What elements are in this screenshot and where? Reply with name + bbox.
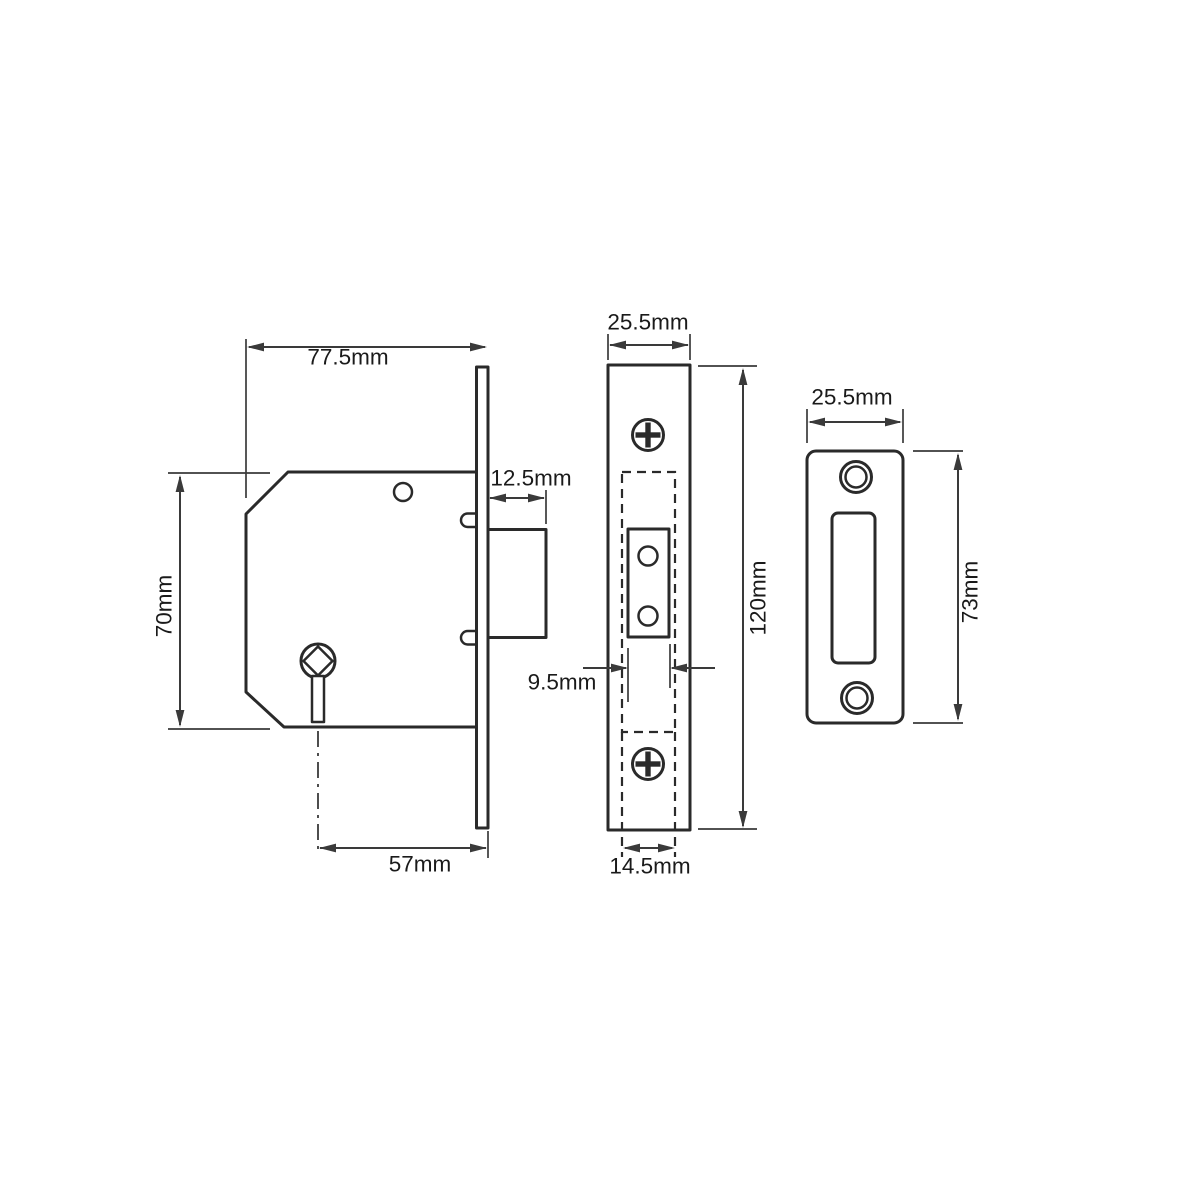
dim-label-case-width: 14.5mm <box>609 854 690 879</box>
arrowhead-left <box>489 494 506 503</box>
dim-label-faceplate-height: 120mm <box>746 560 771 635</box>
strike-plate-view <box>807 451 903 723</box>
strike-screw-hole-top <box>841 462 872 493</box>
deadbolt-side <box>483 530 546 638</box>
arrowhead-left <box>609 341 626 350</box>
bolt-pin-bottom <box>639 607 658 626</box>
dim-backset: 57mm <box>319 831 488 877</box>
arrowhead-right <box>470 343 487 352</box>
arrowhead-up <box>176 475 185 492</box>
drawing-canvas: 77.5mm 70mm 12.5mm 57mm <box>0 0 1200 1200</box>
dim-label-strike-width: 25.5mm <box>811 385 892 410</box>
hole-inner <box>846 467 867 488</box>
arrowhead-right <box>658 844 675 853</box>
screw-cross-v <box>645 752 650 777</box>
faceplate-front-view <box>608 365 690 857</box>
arrowhead-down <box>739 811 748 828</box>
dim-label-faceplate-width: 25.5mm <box>607 310 688 335</box>
dim-label-body-width: 77.5mm <box>307 345 388 370</box>
dim-label-body-height: 70mm <box>152 575 177 638</box>
arrowhead-up <box>739 368 748 385</box>
case-hole <box>394 483 412 501</box>
keyhole-slot <box>312 676 324 722</box>
hole-inner <box>847 688 868 709</box>
arrowhead-down <box>954 704 963 721</box>
arrowhead-left <box>623 844 640 853</box>
phillips-screw-top-icon <box>633 420 664 451</box>
arrowhead-left <box>247 343 264 352</box>
dim-strike-width: 25.5mm <box>807 385 903 444</box>
bolt-pin-top <box>639 547 658 566</box>
dim-faceplate-height: 120mm <box>698 366 771 829</box>
arrowhead-left <box>319 844 336 853</box>
arrowhead-right <box>885 418 902 427</box>
dim-label-backset: 57mm <box>389 852 452 877</box>
phillips-screw-bottom-icon <box>633 749 664 780</box>
dim-faceplate-width: 25.5mm <box>607 310 690 361</box>
lock-case-outline <box>246 472 477 727</box>
arrowhead-right <box>528 494 545 503</box>
dim-label-bolt-width: 9.5mm <box>528 670 597 695</box>
lock-technical-drawing: 77.5mm 70mm 12.5mm 57mm <box>0 0 1200 1200</box>
strike-slot <box>832 513 875 663</box>
faceplate-edge <box>477 367 489 828</box>
arrowhead-left <box>808 418 825 427</box>
lock-body-side-view <box>246 367 546 854</box>
dim-case-width: 14.5mm <box>609 844 690 879</box>
arrowhead-right <box>470 844 487 853</box>
arrowhead-right <box>672 341 689 350</box>
screw-cross-v <box>645 423 650 448</box>
dim-bolt-throw: 12.5mm <box>489 466 572 525</box>
dim-strike-height: 73mm <box>913 451 983 723</box>
arrowhead-down <box>176 710 185 727</box>
dim-label-bolt-throw: 12.5mm <box>490 466 571 491</box>
strike-screw-hole-bottom <box>842 683 873 714</box>
arrowhead-up <box>954 453 963 470</box>
dim-label-strike-height: 73mm <box>958 561 983 624</box>
